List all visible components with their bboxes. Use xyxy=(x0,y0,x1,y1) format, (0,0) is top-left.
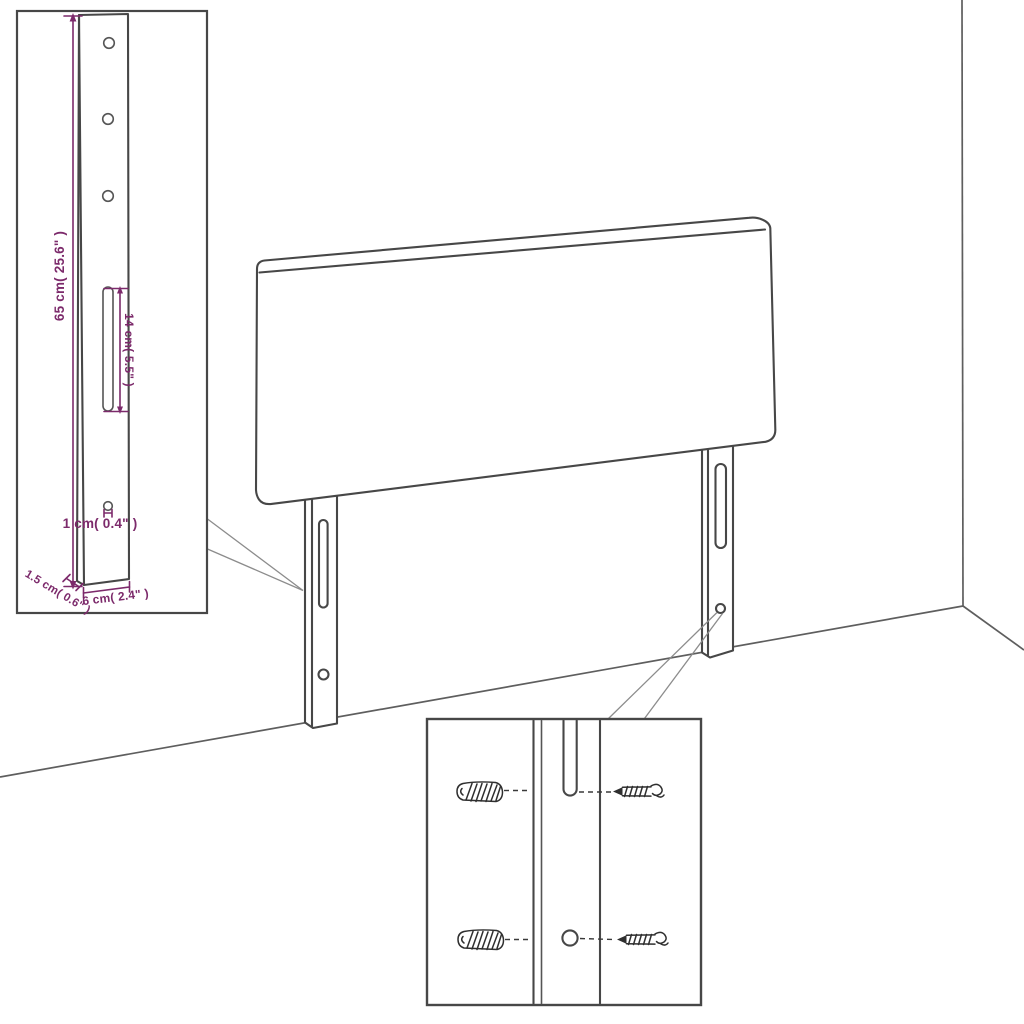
dimension-label-slot: 14 cm( 5.5" ) xyxy=(122,313,136,387)
wall-corner-line xyxy=(962,0,963,606)
headboard-assembly-diagram: 65 cm( 25.6" ) 14 cm( 5.5" ) 1 cm( 0.4" … xyxy=(0,0,1024,1024)
dimension-label-height: 65 cm( 25.6" ) xyxy=(52,231,67,321)
headboard-panel xyxy=(256,218,775,505)
dimension-label-hole: 1 cm( 0.4" ) xyxy=(63,516,138,531)
callout-lines-left-leg xyxy=(208,519,304,591)
diagram-canvas: 65 cm( 25.6" ) 14 cm( 5.5" ) 1 cm( 0.4" … xyxy=(0,0,1024,1024)
mounting-detail-inset xyxy=(427,719,701,1005)
floor-line-right xyxy=(963,606,1024,650)
headboard-leg-right xyxy=(702,436,733,658)
leg-detail-inset: 65 cm( 25.6" ) 14 cm( 5.5" ) 1 cm( 0.4" … xyxy=(17,11,207,617)
headboard-leg-left xyxy=(305,489,337,728)
headboard xyxy=(256,218,775,728)
callout-line xyxy=(645,614,723,719)
